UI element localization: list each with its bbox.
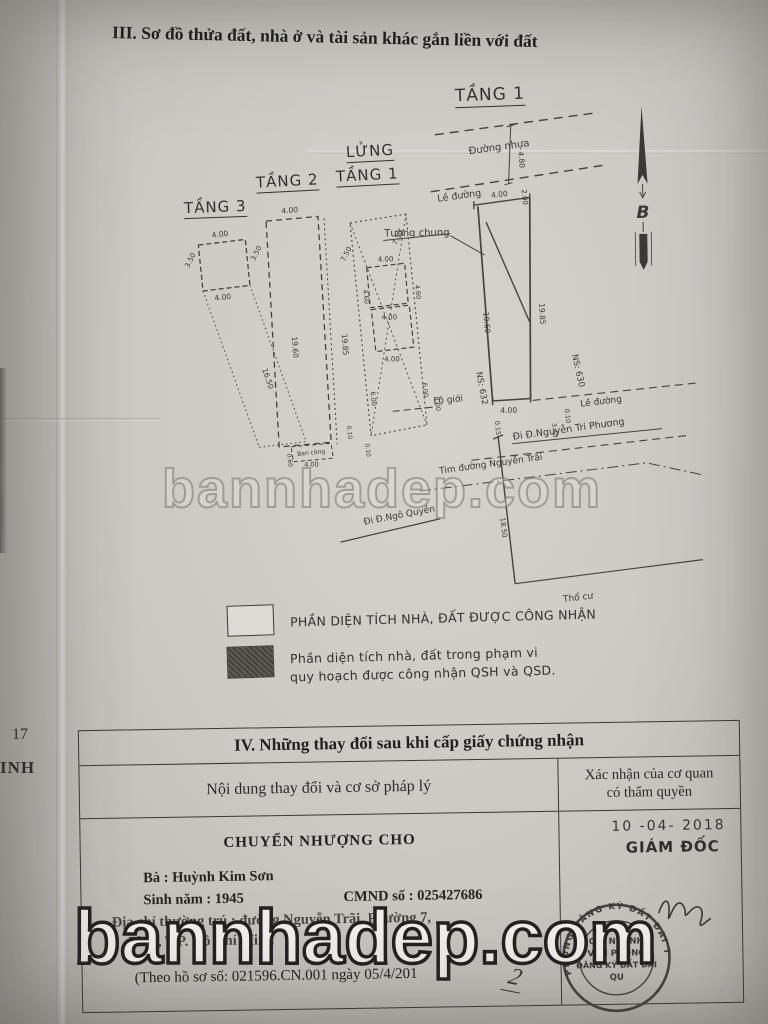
col2-header-line1: Xác nhận của cơ quan xyxy=(585,764,714,784)
t2-label-ban-cong: Ban công xyxy=(297,448,326,458)
plan-lung-tang1: 7.50 7.50 4.00 4.60 4.60 4.00 4.00 6.00 … xyxy=(339,214,443,458)
lung-dim-750-left: 7.50 xyxy=(339,245,353,263)
plan-tang3: 4.00 3.50 3.50 4.00 16.50 xyxy=(183,228,306,449)
transfer-heading: CHUYỂN NHƯỢNG CHO xyxy=(80,830,558,855)
lung-dim-0-10: 0.10 xyxy=(363,443,372,457)
dim-lot-bottom: 4.00 xyxy=(500,406,517,415)
lung-dim-460-right: 4.60 xyxy=(413,284,423,299)
watermark-bottom: bannhadep.com xyxy=(74,894,657,981)
paper-edge-shadow xyxy=(0,368,7,553)
lung-dim-bottom: 4.00 xyxy=(384,355,400,363)
legend-swatch-planned xyxy=(226,645,274,679)
legend-text-planned-line2: quy hoạch được công nhận QSH và QSD. xyxy=(290,663,556,685)
lung-dim-800: 8.00 xyxy=(433,396,443,411)
north-label: B xyxy=(636,203,649,223)
dim-4-80: 4.80 xyxy=(516,151,527,169)
section3-title: III. Sơ đồ thửa đất, nhà ở và tài sản kh… xyxy=(112,22,672,55)
director-title: GIÁM ĐỐC xyxy=(626,837,720,856)
section4-col2-header: Xác nhận của cơ quan có thẩm quyền xyxy=(558,756,740,811)
margin-fragment-17: 17 xyxy=(12,726,28,744)
plan-tang2: 4.00 19.60 19.85 Ban công 4.00 0.10 0.60 xyxy=(266,204,354,469)
t2-dim-length: 19.60 xyxy=(290,336,301,358)
label-tho-cu: Thổ cư xyxy=(561,590,595,605)
paper-fold-crease xyxy=(56,0,68,1024)
scanned-document-page: III. Sơ đồ thửa đất, nhà ở và tài sản kh… xyxy=(0,0,768,1024)
dim-0-15: 0.15 xyxy=(493,420,502,435)
legend-swatch-recognized xyxy=(226,604,274,637)
dim-18-50: 18.50 xyxy=(498,517,508,538)
date-stamp: 10 -04- 2018 xyxy=(611,817,726,835)
floor-plan-drawing: B Đường nhựa 4.80 Lề đường 2.00 4.00 Tườ… xyxy=(136,91,703,629)
t2-dim-top: 4.00 xyxy=(281,205,299,216)
signature-squiggle xyxy=(659,900,711,925)
lung-dim-460-left: 4.60 xyxy=(361,289,371,304)
margin-fragment-inh: INH xyxy=(0,758,35,778)
lung-dim-600-left: 6.00 xyxy=(368,391,378,406)
dim-lot-top: 4.00 xyxy=(491,189,509,200)
label-ns-632: NS: 632 xyxy=(473,371,489,406)
dim-0-10-site: 0.10 xyxy=(563,408,572,423)
lung-dim-mid: 4.00 xyxy=(382,313,398,321)
label-ns-630: NS: 630 xyxy=(569,353,586,388)
label-le-duong-top: Lề đường xyxy=(437,188,482,205)
dim-19-85: 19.85 xyxy=(537,303,547,325)
north-arrow-icon: B xyxy=(633,106,651,270)
t3-dim-length: 16.50 xyxy=(260,367,276,390)
t3-dim-top: 4.00 xyxy=(211,229,229,240)
t3-dim-bottom: 4.00 xyxy=(214,292,232,303)
t3-dim-right: 3.50 xyxy=(249,245,263,263)
paper-crease-left xyxy=(0,418,160,421)
lung-dim-600-right: 6.00 xyxy=(420,382,430,397)
dim-19-60: 19.60 xyxy=(481,312,492,334)
lung-dim-top: 4.00 xyxy=(378,255,394,263)
col2-header-line2: có thẩm quyền xyxy=(607,783,693,802)
t2-dim-outer: 19.85 xyxy=(340,334,351,356)
t2-dim-0-10: 0.10 xyxy=(345,426,353,440)
t3-dim-left: 3.50 xyxy=(183,252,197,270)
watermark-middle: bannhadep.com xyxy=(162,458,602,520)
transferee-name: Bà : Huỳnh Kim Sơn xyxy=(143,868,274,887)
section4-col1-header: Nội dung thay đổi và cơ sở pháp lý xyxy=(79,759,559,819)
label-le-duong-bottom: Lề đường xyxy=(580,394,623,410)
